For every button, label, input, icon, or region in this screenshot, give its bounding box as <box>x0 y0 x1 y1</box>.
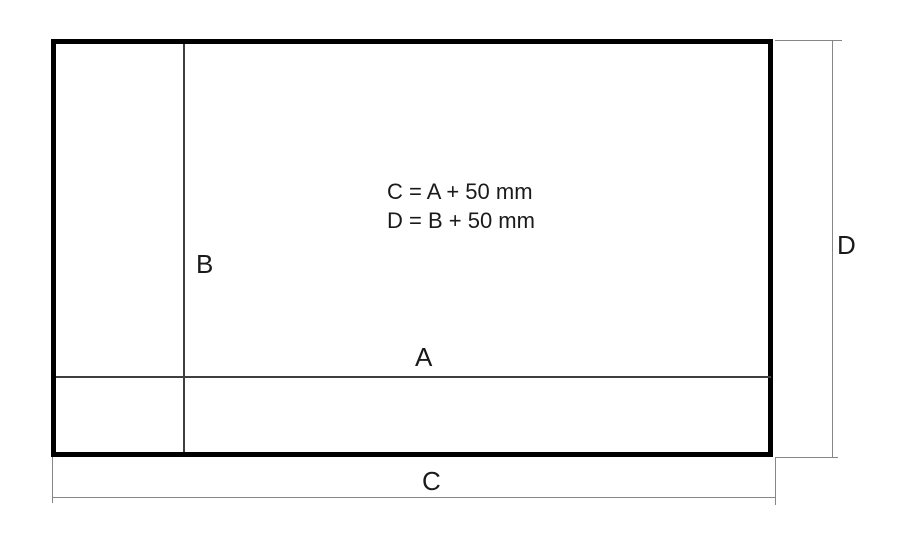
panel-outline-rect <box>51 39 773 457</box>
formula-block: C = A + 50 mm D = B + 50 mm <box>387 177 535 235</box>
label-b: B <box>196 250 213 279</box>
label-d: D <box>837 231 856 260</box>
dimension-line-d <box>832 40 833 458</box>
label-a: A <box>415 343 432 372</box>
extension-line-d-bottom <box>775 457 838 458</box>
formula-c: C = A + 50 mm <box>387 177 535 206</box>
label-c: C <box>422 467 441 496</box>
inner-horizontal-line-a <box>56 376 771 378</box>
diagram-canvas: A B C D C = A + 50 mm D = B + 50 mm <box>0 0 900 546</box>
formula-d: D = B + 50 mm <box>387 206 535 235</box>
dimension-line-c <box>52 497 776 498</box>
inner-vertical-line-b <box>183 44 185 452</box>
